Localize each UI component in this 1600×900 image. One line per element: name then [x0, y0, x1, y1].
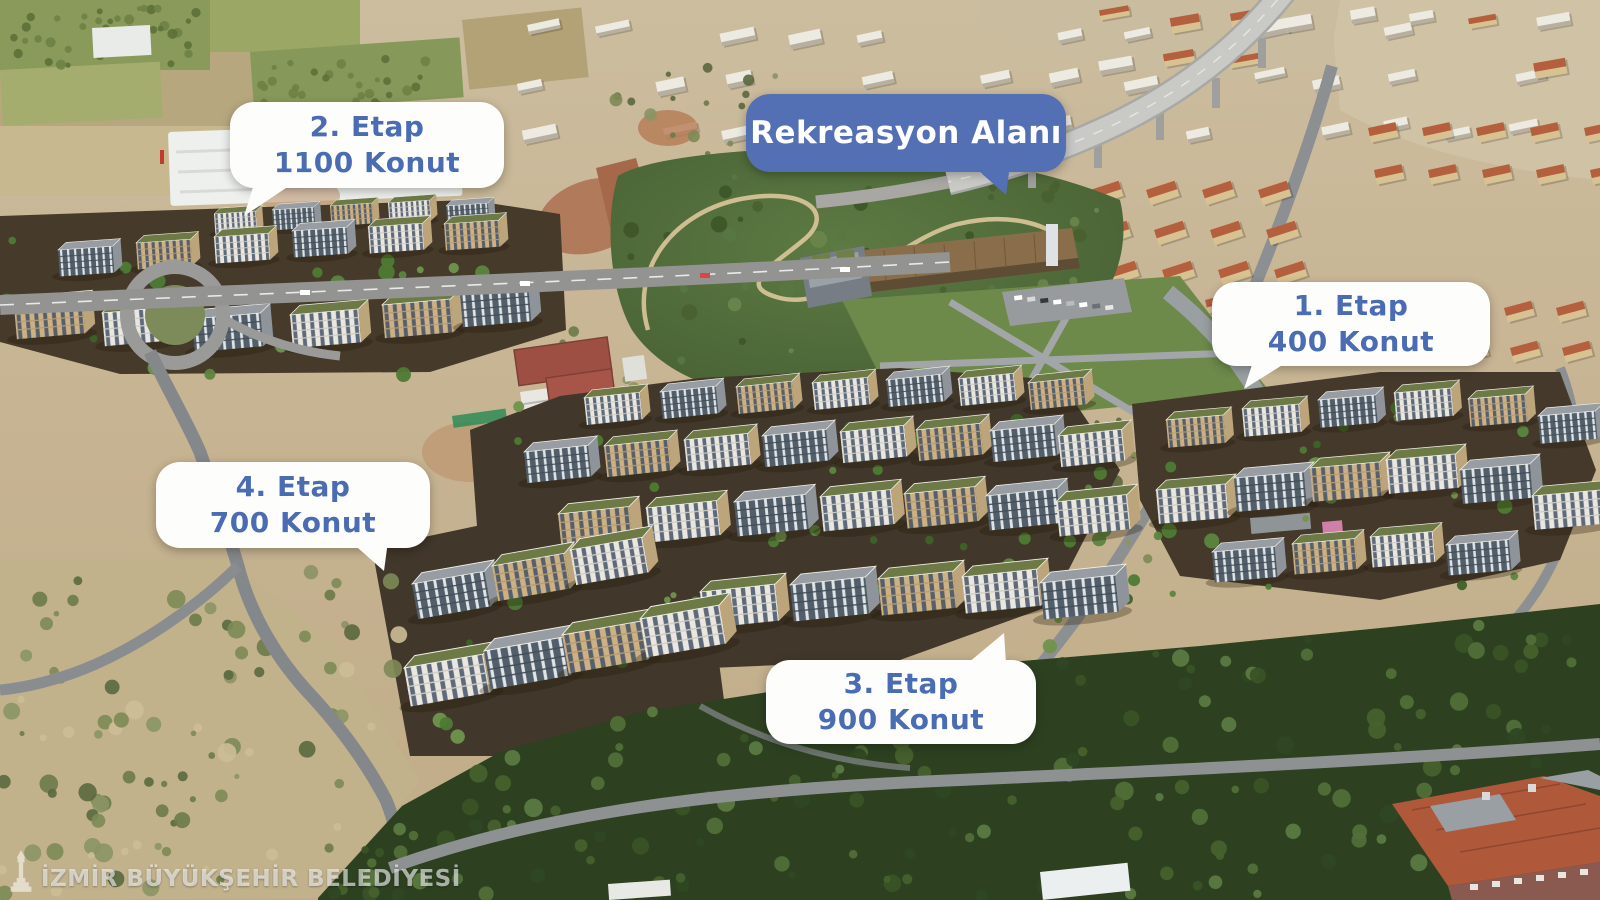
callout-etap-1-title: 1. Etap [1294, 288, 1409, 324]
municipality-watermark-text: İZMİR BÜYÜKŞEHİR BELEDİYESİ [41, 866, 461, 892]
aerial-masterplan-image: 2. Etap 1100 Konut Rekreasyon Alanı 1. E… [0, 0, 1600, 900]
bubble-tail [960, 633, 1020, 667]
izmir-clock-tower-icon [8, 850, 34, 892]
municipality-watermark: İZMİR BÜYÜKŞEHİR BELEDİYESİ [8, 850, 461, 892]
callout-etap-3: 3. Etap 900 Konut [766, 660, 1036, 744]
callout-recreation-area: Rekreasyon Alanı [746, 94, 1066, 172]
callout-etap-2-units: 1100 Konut [274, 145, 460, 181]
callout-etap-2: 2. Etap 1100 Konut [230, 102, 504, 188]
callout-etap-1-units: 400 Konut [1268, 324, 1434, 360]
callout-recreation-label: Rekreasyon Alanı [750, 115, 1062, 151]
callout-etap-4-title: 4. Etap [236, 469, 351, 505]
callout-etap-1: 1. Etap 400 Konut [1212, 282, 1490, 366]
bubble-tail [964, 165, 1024, 199]
callout-etap-3-units: 900 Konut [818, 702, 984, 738]
callout-etap-4: 4. Etap 700 Konut [156, 462, 430, 548]
bubble-tail [238, 184, 298, 218]
callout-etap-3-title: 3. Etap [844, 666, 959, 702]
callout-etap-4-units: 700 Konut [210, 505, 376, 541]
callout-etap-2-title: 2. Etap [310, 109, 425, 145]
bubble-tail [342, 541, 402, 575]
bubble-tail [1240, 359, 1300, 393]
